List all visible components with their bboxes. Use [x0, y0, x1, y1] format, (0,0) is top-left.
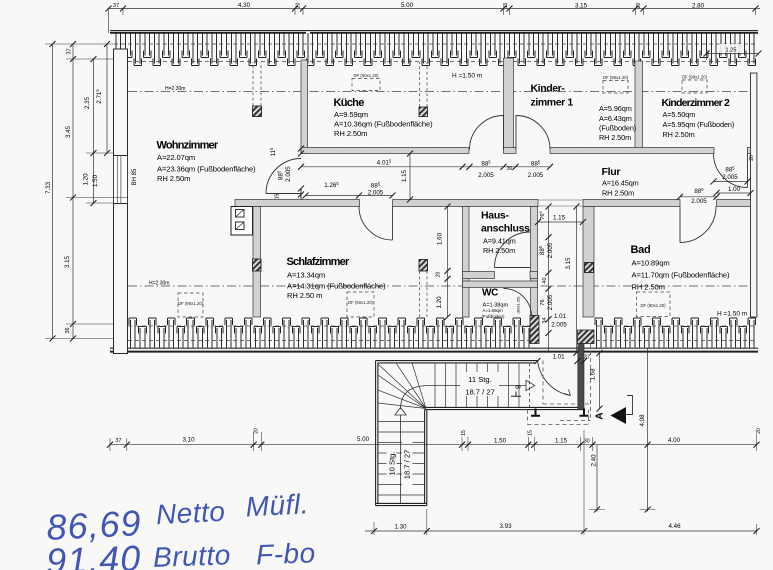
- svg-text:2.005: 2.005: [528, 172, 544, 179]
- svg-text:A=14.31qm (Fußbodenfläche): A=14.31qm (Fußbodenfläche): [287, 282, 386, 291]
- svg-text:(Fußboden): (Fußboden): [482, 314, 505, 319]
- svg-text:A=9.59qm: A=9.59qm: [334, 110, 368, 119]
- svg-text:zimmer 1: zimmer 1: [531, 97, 574, 109]
- svg-text:A=22.07qm: A=22.07qm: [157, 153, 195, 162]
- svg-text:A=5.96qm: A=5.96qm: [599, 104, 632, 113]
- svg-text:Brutto: Brutto: [153, 539, 232, 570]
- svg-text:7.33: 7.33: [45, 181, 52, 194]
- svg-text:76: 76: [540, 299, 546, 305]
- svg-text:1.25: 1.25: [726, 48, 737, 54]
- svg-text:2.005: 2.005: [547, 242, 554, 258]
- svg-text:37: 37: [113, 3, 119, 9]
- svg-text:1.50: 1.50: [494, 438, 507, 445]
- svg-text:(Fußboden): (Fußboden): [599, 123, 636, 132]
- svg-text:2.40: 2.40: [591, 454, 598, 467]
- svg-text:A=6.43qm: A=6.43qm: [599, 114, 632, 123]
- svg-text:RH 2.50m: RH 2.50m: [483, 246, 515, 255]
- svg-text:4.46: 4.46: [668, 523, 681, 530]
- svg-text:H =1.50 m: H =1.50 m: [717, 311, 747, 318]
- svg-text:RH 2.50m: RH 2.50m: [599, 133, 631, 142]
- svg-text:2.80: 2.80: [692, 3, 705, 10]
- svg-text:2.005: 2.005: [691, 198, 707, 205]
- svg-text:A=11.70qm (Fußbodenfläche): A=11.70qm (Fußbodenfläche): [632, 271, 731, 280]
- svg-text:RH 2.50m: RH 2.50m: [663, 130, 695, 139]
- svg-text:3.45: 3.45: [65, 125, 72, 138]
- svg-text:DF (90x1.20): DF (90x1.20): [682, 75, 708, 80]
- svg-text:DF (90x1.20): DF (90x1.20): [640, 303, 666, 308]
- svg-text:DF (90x1.20): DF (90x1.20): [178, 301, 204, 306]
- svg-text:A=13.34qm: A=13.34qm: [287, 271, 325, 280]
- svg-text:20: 20: [296, 3, 302, 9]
- svg-text:A=10.36qm (Fußbodenfläche): A=10.36qm (Fußbodenfläche): [334, 120, 433, 129]
- svg-text:A=9.41qm: A=9.41qm: [483, 237, 516, 246]
- svg-text:2.005: 2.005: [547, 294, 554, 310]
- svg-text:1.15: 1.15: [401, 169, 408, 182]
- svg-text:37: 37: [115, 438, 121, 444]
- svg-text:RH 2.50m: RH 2.50m: [632, 283, 665, 292]
- svg-text:RH 2.50m: RH 2.50m: [157, 174, 190, 183]
- svg-text:5.00: 5.00: [401, 2, 414, 9]
- svg-text:A=23.36qm (Fußbodenfläche): A=23.36qm (Fußbodenfläche): [157, 164, 256, 173]
- svg-text:A=5.50qm: A=5.50qm: [663, 110, 696, 119]
- svg-text:1.01: 1.01: [554, 313, 567, 320]
- svg-text:8: 8: [514, 385, 521, 389]
- svg-text:1.15: 1.15: [555, 438, 568, 445]
- svg-text:91,40: 91,40: [45, 537, 141, 570]
- svg-text:18.7 / 27: 18.7 / 27: [403, 450, 412, 480]
- svg-text:F-bo: F-bo: [256, 537, 317, 570]
- svg-text:Flur: Flur: [602, 166, 621, 178]
- svg-text:1.20: 1.20: [83, 173, 90, 186]
- svg-text:20: 20: [436, 272, 442, 278]
- svg-text:Kinder-: Kinder-: [531, 83, 566, 95]
- svg-text:A=1.69qm: A=1.69qm: [483, 308, 503, 313]
- svg-text:A=5.95qm (Fußboden): A=5.95qm (Fußboden): [663, 120, 735, 129]
- svg-text:3.10: 3.10: [182, 437, 195, 444]
- svg-text:36: 36: [65, 327, 71, 333]
- svg-text:1.60: 1.60: [437, 232, 444, 245]
- svg-text:15: 15: [503, 3, 509, 9]
- svg-text:2.005: 2.005: [722, 174, 738, 181]
- svg-text:34: 34: [542, 317, 548, 323]
- svg-text:Kinderzimmer 2: Kinderzimmer 2: [662, 97, 731, 109]
- svg-text:2.005: 2.005: [551, 322, 567, 329]
- svg-text:30: 30: [584, 439, 590, 445]
- svg-text:20: 20: [749, 155, 755, 161]
- svg-text:1.20: 1.20: [436, 296, 443, 309]
- svg-text:18.7 / 27: 18.7 / 27: [465, 388, 495, 397]
- svg-text:4.00: 4.00: [668, 437, 681, 444]
- svg-text:1.30: 1.30: [394, 524, 407, 531]
- svg-text:H=2.30m: H=2.30m: [165, 86, 185, 92]
- svg-text:3.93: 3.93: [499, 523, 512, 530]
- svg-text:Netto: Netto: [155, 496, 226, 531]
- svg-text:1.01: 1.01: [552, 354, 565, 361]
- svg-text:1.15: 1.15: [553, 215, 566, 222]
- svg-text:5.00: 5.00: [357, 436, 370, 443]
- svg-text:RH 2.50m: RH 2.50m: [334, 129, 367, 138]
- svg-text:10 Stg.: 10 Stg.: [388, 451, 397, 475]
- svg-text:11 Stg.: 11 Stg.: [468, 375, 492, 384]
- svg-text:RH 2.50m: RH 2.50m: [602, 189, 634, 198]
- svg-text:2.35: 2.35: [84, 96, 91, 109]
- svg-text:A=16.45qm: A=16.45qm: [602, 179, 639, 188]
- svg-text:A: A: [595, 412, 606, 419]
- svg-text:Müfl.: Müfl.: [245, 488, 310, 522]
- svg-text:DF (90x1.20): DF (90x1.20): [603, 75, 629, 80]
- svg-text:anschluss: anschluss: [481, 223, 530, 235]
- svg-text:40: 40: [542, 277, 548, 283]
- svg-text:2.005: 2.005: [368, 190, 384, 197]
- svg-text:BH 85: BH 85: [132, 168, 138, 185]
- svg-text:20: 20: [636, 3, 642, 9]
- svg-text:H =1.50 m: H =1.50 m: [452, 73, 482, 80]
- svg-text:15: 15: [461, 430, 467, 436]
- svg-text:A=10.89qm: A=10.89qm: [632, 259, 670, 268]
- svg-text:4.30: 4.30: [238, 2, 251, 9]
- svg-text:Küche: Küche: [334, 97, 365, 109]
- svg-text:20: 20: [756, 428, 762, 434]
- svg-text:RH 2.50 m: RH 2.50 m: [287, 291, 322, 300]
- svg-text:Wohnzimmer: Wohnzimmer: [157, 140, 219, 152]
- svg-text:1.00: 1.00: [728, 186, 741, 193]
- svg-text:DF (60x1.20): DF (60x1.20): [348, 300, 374, 305]
- svg-text:3.15: 3.15: [565, 257, 572, 270]
- svg-text:2.005: 2.005: [478, 172, 494, 179]
- svg-text:15: 15: [527, 430, 533, 436]
- svg-text:DF (60x1.20): DF (60x1.20): [353, 73, 379, 78]
- svg-text:3.15: 3.15: [64, 255, 71, 268]
- svg-text:1.68: 1.68: [590, 368, 597, 381]
- svg-text:Bad: Bad: [631, 244, 651, 256]
- svg-text:4.08: 4.08: [639, 414, 646, 427]
- svg-text:20: 20: [254, 428, 260, 434]
- svg-text:15: 15: [275, 194, 281, 200]
- svg-text:Schlafzimmer: Schlafzimmer: [287, 256, 350, 268]
- svg-text:(80x1.35): (80x1.35): [516, 296, 521, 314]
- svg-text:1.50: 1.50: [92, 174, 99, 187]
- svg-text:Haus-: Haus-: [481, 210, 509, 222]
- svg-text:37: 37: [67, 48, 73, 54]
- svg-text:H=2.30m: H=2.30m: [149, 281, 169, 287]
- svg-text:2.005: 2.005: [285, 166, 292, 182]
- svg-text:30: 30: [507, 166, 513, 172]
- svg-text:3.15: 3.15: [575, 3, 588, 10]
- svg-text:WC: WC: [482, 288, 498, 299]
